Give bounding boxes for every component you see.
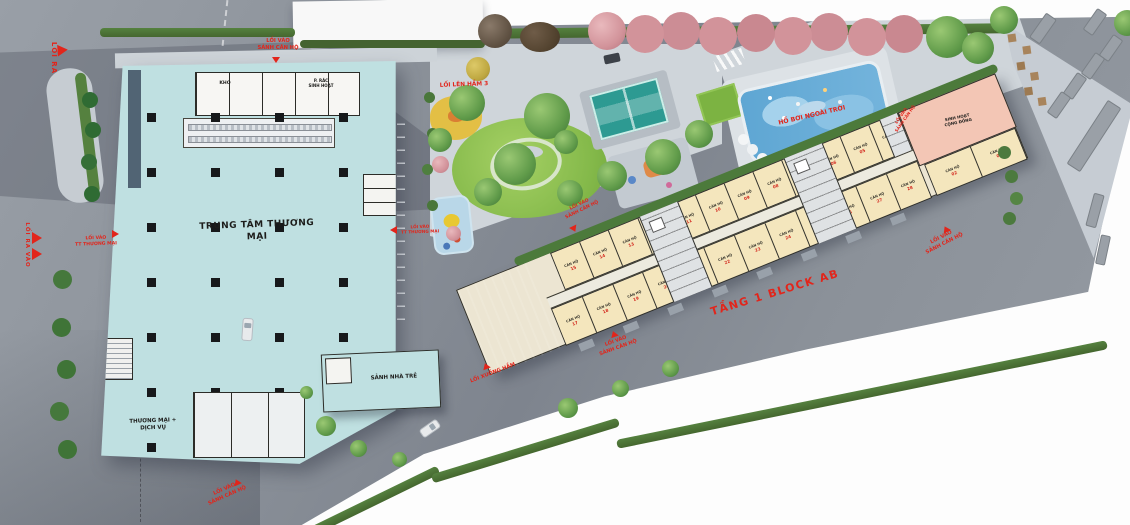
tree: [962, 32, 994, 64]
tree: [612, 380, 629, 397]
park-shrubs: [424, 92, 435, 103]
waste-room-label: P. RÁC SINH HOẠT: [300, 78, 342, 88]
escalator-band: [188, 124, 332, 131]
exit-label: LỐI RA: [49, 28, 58, 88]
tree: [662, 360, 679, 377]
car-windshield: [244, 323, 251, 328]
lobby-entry-arrow-icon: [272, 57, 280, 63]
mall-entry-arrow-icon: [112, 230, 119, 238]
tree: [597, 161, 627, 191]
play-item: [628, 176, 636, 184]
car: [241, 318, 254, 342]
commerce-service-label: THƯƠNG MẠI + DỊCH VỤ: [118, 417, 188, 434]
tree: [990, 6, 1018, 34]
tree: [494, 143, 536, 185]
kindergarten-lobby-label: SẢNH NHÀ TRẺ: [349, 372, 439, 383]
elevator: [649, 217, 666, 233]
hedge: [100, 28, 295, 37]
bush: [520, 22, 560, 52]
pool-umbrellas: [738, 134, 749, 145]
pink-tree: [432, 156, 449, 173]
pool-floats: [768, 96, 772, 100]
tree: [316, 416, 336, 436]
roadside-bushes: [52, 318, 71, 337]
mall-side-rooms: [363, 174, 401, 216]
mall-stair: [103, 338, 133, 380]
tree: [645, 139, 681, 175]
tree: [350, 440, 367, 457]
pink-tree: [446, 226, 461, 241]
palm-trees: [82, 92, 98, 108]
column-grid: [147, 113, 156, 122]
exit-entry-arrow-icon: [32, 232, 42, 244]
tree: [428, 128, 452, 152]
site-plan: KHO P. RÁC SINH HOẠT TRUNG TÂM THƯƠNG MẠ…: [0, 0, 1130, 525]
tree: [558, 398, 578, 418]
play-item: [666, 182, 672, 188]
mall-entry-label-2: LỐI VÀO TT THƯƠNG MẠI: [396, 223, 444, 236]
exit-entry-arrow-icon: [32, 248, 42, 260]
hedge: [300, 40, 485, 48]
picnic-tables: [1007, 33, 1016, 42]
escalator: [183, 118, 335, 148]
mall-back-rooms: [193, 392, 305, 458]
bush: [478, 14, 512, 48]
pink-tree-row: [588, 12, 626, 50]
tree: [474, 178, 502, 206]
play-item: [443, 242, 451, 250]
mall-wall-strip: [128, 70, 141, 188]
tree: [685, 120, 713, 148]
storage-room-label: KHO: [200, 81, 250, 87]
yellow-tree: [466, 57, 490, 81]
roadside-bushes: [998, 146, 1011, 159]
tree: [300, 386, 313, 399]
tree: [449, 85, 485, 121]
tree: [554, 130, 578, 154]
mall-entry-arrow-icon: [390, 226, 397, 234]
kindergarten-lobby: SẢNH NHÀ TRẺ: [321, 349, 441, 412]
mall-title: TRUNG TÂM THƯƠNG MẠI: [192, 218, 323, 246]
escalator-band: [188, 136, 332, 143]
exit-entry-label: LỐI RA VÀO: [23, 222, 30, 268]
community-room-label: SINH HOẠT CỘNG ĐỒNG: [943, 112, 972, 128]
car-windshield: [429, 423, 437, 431]
lobby-entry-label-top: LỐI VÀO SẢNH CĂN HỘ: [247, 38, 309, 52]
tree: [392, 452, 407, 467]
elevator: [793, 158, 810, 174]
